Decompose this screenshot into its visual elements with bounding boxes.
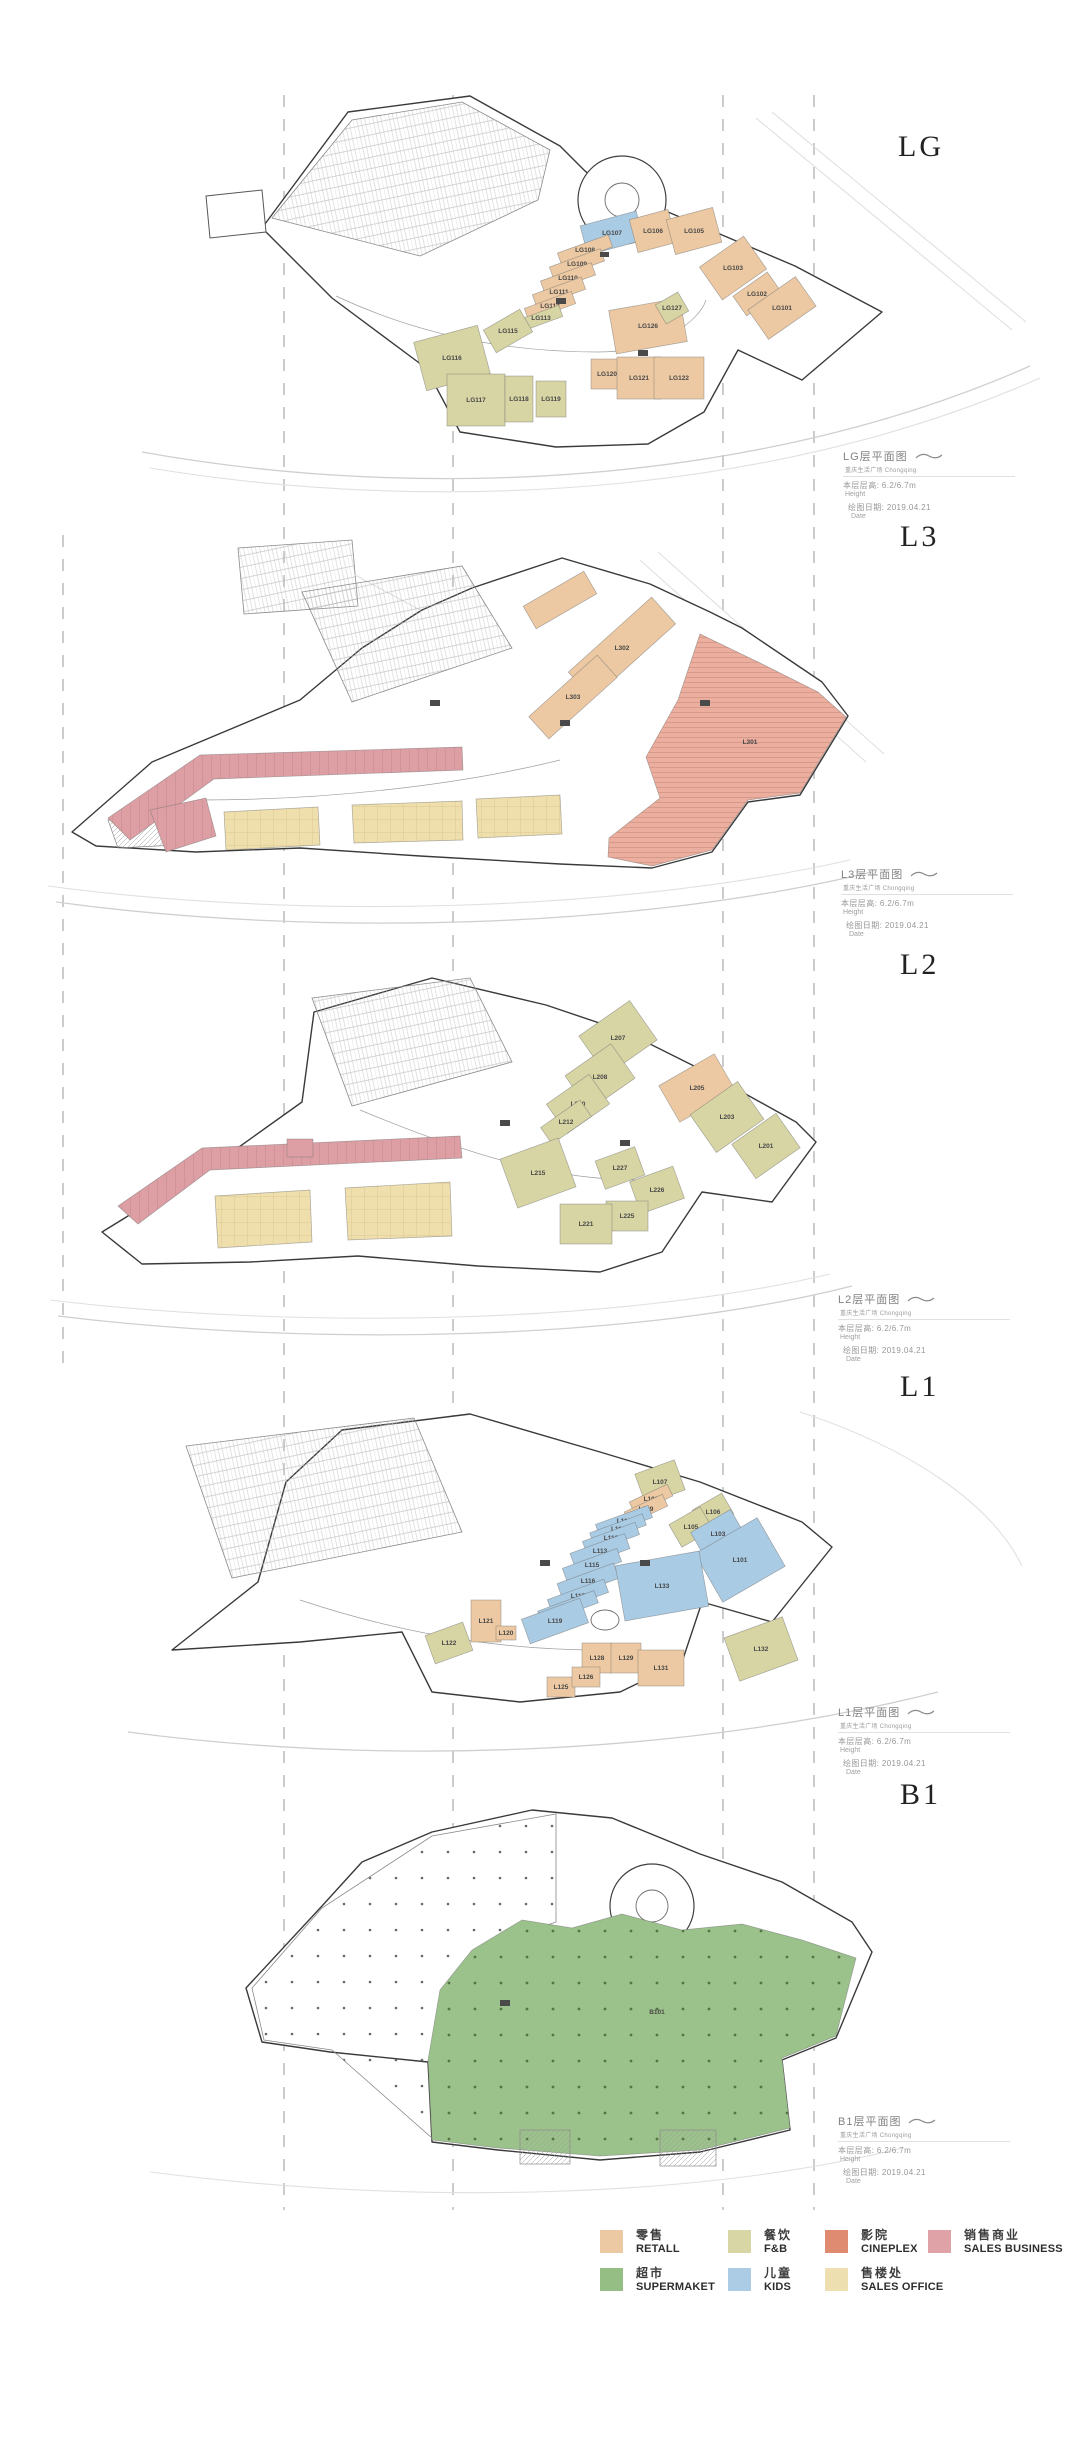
unit-L128 bbox=[582, 1643, 612, 1673]
stair-core bbox=[700, 700, 710, 706]
unit-L133 bbox=[615, 1551, 708, 1621]
unit-sales_business bbox=[108, 747, 463, 840]
annotation-rule bbox=[838, 1732, 1010, 1733]
building-footprint bbox=[262, 96, 882, 447]
unit-L303 bbox=[529, 655, 617, 739]
corridor-line bbox=[200, 760, 560, 800]
construction-gridline bbox=[62, 535, 64, 1365]
unit-LG118 bbox=[505, 376, 533, 422]
annotation-rule bbox=[841, 894, 1013, 895]
unit-label-L302: L302 bbox=[615, 645, 630, 652]
stair-core bbox=[430, 700, 440, 706]
legend-label-cn: 儿童 bbox=[764, 2267, 792, 2281]
stair-core bbox=[540, 1560, 550, 1566]
unit-L129 bbox=[611, 1643, 641, 1673]
floorplan-sheet: LG107LG106LG105LG103LG102LG101LG108LG109… bbox=[0, 0, 1080, 2463]
unit-L212 bbox=[541, 1100, 592, 1144]
annotation-height: 本层层高: 6.2/6.7m bbox=[838, 2145, 1028, 2156]
road-line bbox=[50, 1274, 830, 1318]
unit-L111 bbox=[590, 1514, 647, 1544]
annotation-rule bbox=[838, 1319, 1010, 1320]
unit-label-LG117: LG117 bbox=[466, 397, 486, 404]
floor-title-lg: LG bbox=[898, 130, 944, 164]
annotation-date-en: Date bbox=[849, 931, 1031, 939]
unit-label-LG112: LG112 bbox=[540, 303, 560, 310]
unit-LG106 bbox=[629, 209, 676, 252]
unit-LG109 bbox=[549, 249, 604, 280]
unit-LG122 bbox=[654, 357, 704, 399]
unit-LG119 bbox=[536, 381, 566, 417]
legend-item-sales-business: 销售商业 SALES BUSINESS bbox=[928, 2229, 1063, 2255]
stair-core bbox=[638, 350, 648, 356]
circular-ramp-inner bbox=[605, 183, 639, 217]
unit-LG127 bbox=[655, 292, 689, 324]
unit-label-LG106: LG106 bbox=[643, 228, 663, 235]
construction-gridline bbox=[722, 95, 724, 2210]
unit-L122 bbox=[425, 1622, 473, 1664]
unit-label-LG119: LG119 bbox=[541, 396, 561, 403]
legend-swatch-fnb bbox=[728, 2230, 751, 2253]
unit-retail bbox=[523, 571, 597, 629]
unit-L119 bbox=[521, 1598, 588, 1644]
annotation-height-en: Height bbox=[843, 909, 1031, 917]
plaza-oval bbox=[591, 1610, 619, 1630]
unit-sales_office bbox=[352, 801, 463, 843]
unit-L227 bbox=[595, 1147, 645, 1190]
unit-pattern-overlay bbox=[345, 1182, 452, 1240]
road-line bbox=[48, 860, 850, 907]
annotation-height-en: Height bbox=[845, 491, 1033, 499]
annotation-title: L1层平面图 bbox=[838, 1704, 900, 1720]
annotation-height: 本层层高: 6.2/6.7m bbox=[841, 898, 1031, 909]
annotation-title-row: B1层平面图 bbox=[838, 2113, 1028, 2129]
legend-swatch-retail bbox=[600, 2230, 623, 2253]
unit-label-L301: L301 bbox=[743, 739, 758, 746]
unit-sales_office bbox=[345, 1182, 452, 1240]
unit-L113 bbox=[570, 1534, 630, 1569]
unit-label-L210: L210 bbox=[571, 1101, 586, 1108]
plan-annotation-b1: B1层平面图 重庆生活广场 Chongqing 本层层高: 6.2/6.7m H… bbox=[838, 2113, 1028, 2185]
unit-label-L107: L107 bbox=[653, 1479, 668, 1486]
unit-pattern-overlay bbox=[352, 801, 463, 843]
unit-label-L215: L215 bbox=[531, 1170, 546, 1177]
legend-label-en: SUPERMAKET bbox=[636, 2281, 715, 2294]
unit-label-L208: L208 bbox=[593, 1074, 608, 1081]
legend-swatch-sales-office bbox=[825, 2268, 848, 2291]
unit-label-L115: L115 bbox=[585, 1562, 600, 1569]
annotation-date: 绘图日期: 2019.04.21 bbox=[843, 2167, 1028, 2178]
parking-area bbox=[252, 1814, 556, 2138]
unit-L126 bbox=[572, 1667, 600, 1687]
unit-label-L106: L106 bbox=[706, 1509, 721, 1516]
unit-label-L131: L131 bbox=[654, 1665, 669, 1672]
corridor-line bbox=[336, 296, 706, 352]
legend-swatch-supermarket bbox=[600, 2268, 623, 2291]
unit-L208 bbox=[565, 1044, 635, 1111]
construction-gridline bbox=[283, 95, 285, 2210]
legend-swatch-cineplex bbox=[825, 2230, 848, 2253]
annotation-date-en: Date bbox=[846, 1356, 1028, 1364]
road-line bbox=[640, 560, 866, 762]
unit-L203 bbox=[690, 1082, 764, 1153]
unit-sales_office bbox=[215, 1190, 312, 1248]
circular-ramp bbox=[578, 156, 666, 244]
unit-pattern-overlay bbox=[108, 747, 463, 840]
legend-item-sales-office: 售楼处 SALES OFFICE bbox=[825, 2267, 943, 2293]
unit-label-L133: L133 bbox=[655, 1583, 670, 1590]
annotation-title: LG层平面图 bbox=[843, 448, 908, 464]
unit-B101 bbox=[428, 1914, 856, 2156]
unit-label-LG101: LG101 bbox=[772, 305, 792, 312]
unit-label-L116: L116 bbox=[581, 1578, 596, 1585]
unit-LG105 bbox=[666, 207, 722, 254]
unit-layer: L301L302L303 bbox=[108, 571, 846, 866]
unit-L125 bbox=[547, 1677, 575, 1697]
unit-label-LG110: LG110 bbox=[558, 275, 578, 282]
road-line bbox=[658, 552, 884, 754]
unit-layer: L207L208L210L212L215L205L203L201L227L226… bbox=[118, 1001, 800, 1248]
floor-title-b1: B1 bbox=[900, 1778, 941, 1812]
unit-LG107 bbox=[580, 211, 644, 255]
unit-label-L128: L128 bbox=[590, 1655, 605, 1662]
legend-label-en: F&B bbox=[764, 2243, 792, 2256]
annotation-subtitle: 重庆生活广场 Chongqing bbox=[840, 2130, 1028, 2139]
unit-label-L105: L105 bbox=[684, 1524, 699, 1531]
ramp-hatch bbox=[108, 800, 176, 848]
legend-label-cn: 零售 bbox=[636, 2229, 680, 2243]
floor-plan-l2: L207L208L210L212L215L205L203L201L227L226… bbox=[0, 950, 1080, 1350]
road-line bbox=[756, 118, 1012, 330]
annotation-title-row: L1层平面图 bbox=[838, 1704, 1028, 1720]
legend-label-cn: 超市 bbox=[636, 2267, 715, 2281]
unit-label-LG107: LG107 bbox=[602, 230, 622, 237]
unit-label-L207: L207 bbox=[611, 1035, 626, 1042]
corridor-line bbox=[360, 1110, 640, 1180]
unit-L105 bbox=[669, 1507, 713, 1548]
legend-label-en: SALES OFFICE bbox=[861, 2281, 943, 2294]
unit-L118 bbox=[538, 1591, 599, 1624]
legend-swatch-kids bbox=[728, 2268, 751, 2291]
annotation-title-row: LG层平面图 bbox=[843, 448, 1033, 464]
unit-L108 bbox=[629, 1484, 673, 1514]
unit-label-L132: L132 bbox=[754, 1646, 769, 1653]
unit-pattern-overlay bbox=[150, 798, 216, 852]
plan-annotation-l3: L3层平面图 重庆生活广场 Chongqing 本层层高: 6.2/6.7m H… bbox=[841, 866, 1031, 938]
annotation-height-en: Height bbox=[840, 1747, 1028, 1755]
annotation-height-en: Height bbox=[840, 1334, 1028, 1342]
unit-label-L113: L113 bbox=[593, 1548, 608, 1555]
legend-label-cn: 售楼处 bbox=[861, 2267, 943, 2281]
unit-label-L119: L119 bbox=[548, 1618, 563, 1625]
unit-pattern-overlay bbox=[428, 1914, 856, 2156]
loading-dock bbox=[520, 2130, 570, 2164]
unit-L131 bbox=[638, 1650, 684, 1686]
unit-label-L101: L101 bbox=[733, 1557, 748, 1564]
annotation-date-en: Date bbox=[851, 513, 1033, 521]
unit-sales_business bbox=[150, 798, 216, 852]
unit-sales_office bbox=[224, 807, 320, 850]
unit-label-LG108: LG108 bbox=[575, 247, 595, 254]
unit-label-L227: L227 bbox=[613, 1165, 628, 1172]
unit-label-B101: B101 bbox=[649, 2009, 665, 2016]
unit-label-L118: L118 bbox=[561, 1604, 576, 1611]
annotation-date: 绘图日期: 2019.04.21 bbox=[846, 920, 1031, 931]
annotation-subtitle: 重庆生活广场 Chongqing bbox=[840, 1721, 1028, 1730]
unit-label-L120: L120 bbox=[499, 1630, 514, 1637]
unit-label-L225: L225 bbox=[620, 1213, 635, 1220]
unit-label-LG115: LG115 bbox=[498, 328, 518, 335]
unit-L225 bbox=[606, 1201, 648, 1231]
unit-L210 bbox=[546, 1074, 609, 1133]
unit-L107 bbox=[635, 1460, 685, 1504]
unit-label-L125: L125 bbox=[554, 1684, 569, 1691]
plan-annotation-lg: LG层平面图 重庆生活广场 Chongqing 本层层高: 6.2/6.7m H… bbox=[843, 448, 1033, 520]
unit-layer: B101 bbox=[428, 1914, 856, 2156]
legend-label-cn: 餐饮 bbox=[764, 2229, 792, 2243]
unit-label-L121: L121 bbox=[479, 1618, 494, 1625]
detached-block bbox=[238, 540, 358, 614]
unit-label-LG109: LG109 bbox=[567, 261, 587, 268]
unit-LG120 bbox=[591, 359, 623, 389]
loading-dock bbox=[660, 2130, 716, 2166]
unit-L201 bbox=[732, 1113, 800, 1178]
unit-label-L122: L122 bbox=[442, 1640, 457, 1647]
unit-label-LG121: LG121 bbox=[629, 375, 649, 382]
unit-LG115 bbox=[483, 309, 532, 353]
building-footprint bbox=[102, 978, 816, 1272]
annotation-height: 本层层高: 6.2/6.7m bbox=[838, 1736, 1028, 1747]
unit-L101 bbox=[695, 1518, 785, 1602]
unit-label-L126: L126 bbox=[579, 1674, 594, 1681]
legend-label-en: SALES BUSINESS bbox=[964, 2243, 1063, 2256]
legend-item-supermarket: 超市 SUPERMAKET bbox=[600, 2267, 715, 2293]
unit-label-LG126: LG126 bbox=[638, 323, 658, 330]
unit-layer: LG107LG106LG105LG103LG102LG101LG108LG109… bbox=[414, 207, 816, 426]
unit-label-L108: L108 bbox=[644, 1496, 659, 1503]
unit-label-L226: L226 bbox=[650, 1187, 665, 1194]
unit-LG110 bbox=[540, 263, 595, 294]
unit-label-L117: L117 bbox=[571, 1593, 586, 1600]
parking-garage bbox=[186, 1418, 462, 1578]
unit-L121 bbox=[471, 1600, 501, 1642]
annotation-date: 绘图日期: 2019.04.21 bbox=[843, 1345, 1028, 1356]
stair-core bbox=[556, 298, 566, 304]
annotation-height-en: Height bbox=[840, 2156, 1028, 2164]
logo-squiggle-icon bbox=[906, 1707, 936, 1717]
annotation-title-row: L3层平面图 bbox=[841, 866, 1031, 882]
annotation-title-row: L2层平面图 bbox=[838, 1291, 1028, 1307]
annotation-title: L2层平面图 bbox=[838, 1291, 900, 1307]
unit-L221 bbox=[560, 1204, 612, 1244]
legend-label-cn: 销售商业 bbox=[964, 2229, 1063, 2243]
building-footprint bbox=[172, 1414, 832, 1702]
unit-L117 bbox=[547, 1579, 608, 1613]
plan-annotation-l2: L2层平面图 重庆生活广场 Chongqing 本层层高: 6.2/6.7m H… bbox=[838, 1291, 1028, 1363]
annotation-rule bbox=[838, 2141, 1010, 2142]
annotation-height: 本层层高: 6.2/6.7m bbox=[838, 1323, 1028, 1334]
annotation-subtitle: 重庆生活广场 Chongqing bbox=[845, 465, 1033, 474]
entry-block bbox=[206, 190, 266, 238]
unit-label-L110: L110 bbox=[617, 1518, 632, 1525]
logo-squiggle-icon bbox=[909, 869, 939, 879]
unit-LG117 bbox=[447, 374, 505, 426]
annotation-date-en: Date bbox=[846, 1769, 1028, 1777]
unit-sales_business bbox=[118, 1136, 462, 1224]
logo-squiggle-icon bbox=[914, 451, 944, 461]
road-line bbox=[56, 872, 872, 923]
legend-label-cn: 影院 bbox=[861, 2229, 918, 2243]
legend-item-kids: 儿童 KIDS bbox=[728, 2267, 792, 2293]
logo-squiggle-icon bbox=[907, 2116, 937, 2126]
annotation-date: 绘图日期: 2019.04.21 bbox=[843, 1758, 1028, 1769]
legend-item-fnb: 餐饮 F&B bbox=[728, 2229, 792, 2255]
unit-label-L303: L303 bbox=[566, 694, 581, 701]
annotation-height: 本层层高: 6.2/6.7m bbox=[843, 480, 1033, 491]
annotation-title: L3层平面图 bbox=[841, 866, 903, 882]
unit-sales_office bbox=[476, 795, 562, 838]
corridor-line bbox=[300, 1600, 600, 1650]
unit-label-LG122: LG122 bbox=[669, 375, 689, 382]
annotation-rule bbox=[843, 476, 1015, 477]
building-footprint bbox=[246, 1810, 872, 2160]
stair-core bbox=[500, 1120, 510, 1126]
stair-core bbox=[500, 2000, 510, 2006]
bridge-line bbox=[355, 575, 420, 610]
unit-LG113 bbox=[519, 305, 563, 331]
unit-L110 bbox=[595, 1505, 652, 1536]
stair-core bbox=[640, 1560, 650, 1566]
unit-label-L112: L112 bbox=[604, 1535, 619, 1542]
unit-L215 bbox=[500, 1138, 576, 1208]
stair-core bbox=[620, 1140, 630, 1146]
unit-LG112 bbox=[524, 291, 575, 320]
annotation-subtitle: 重庆生活广场 Chongqing bbox=[840, 1308, 1028, 1317]
unit-label-LG102: LG102 bbox=[747, 291, 767, 298]
unit-label-L221: L221 bbox=[579, 1221, 594, 1228]
unit-label-LG103: LG103 bbox=[723, 265, 743, 272]
parking-garage bbox=[312, 978, 512, 1106]
unit-label-LG111: LG111 bbox=[549, 289, 569, 296]
unit-LG101 bbox=[748, 277, 816, 340]
parking-garage bbox=[302, 566, 512, 702]
unit-L120 bbox=[496, 1626, 516, 1640]
stair-core bbox=[560, 720, 570, 726]
parking-garage bbox=[272, 102, 550, 256]
annotation-date: 绘图日期: 2019.04.21 bbox=[848, 502, 1033, 513]
unit-LG126 bbox=[609, 298, 688, 354]
unit-label-L212: L212 bbox=[559, 1119, 574, 1126]
unit-L301 bbox=[608, 634, 846, 866]
circular-ramp-inner bbox=[636, 1890, 668, 1922]
unit-L302 bbox=[568, 597, 675, 699]
legend-label-en: RETALL bbox=[636, 2243, 680, 2256]
road-line bbox=[58, 1286, 852, 1335]
unit-L103 bbox=[691, 1510, 746, 1559]
legend-label-en: KIDS bbox=[764, 2281, 792, 2294]
unit-pattern-overlay bbox=[476, 795, 562, 838]
construction-gridline bbox=[452, 95, 454, 2210]
road-line bbox=[128, 1692, 938, 1751]
unit-label-L205: L205 bbox=[690, 1085, 705, 1092]
unit-pattern-overlay bbox=[224, 807, 320, 850]
unit-LG102 bbox=[733, 272, 781, 316]
road-line bbox=[800, 1412, 1022, 1566]
unit-layer: L107L108L109L106L105L103L101L110L111L112… bbox=[425, 1460, 798, 1697]
annotation-subtitle: 重庆生活广场 Chongqing bbox=[843, 883, 1031, 892]
annotation-title: B1层平面图 bbox=[838, 2113, 901, 2129]
unit-pattern-overlay bbox=[215, 1190, 312, 1248]
unit-LG108 bbox=[557, 235, 612, 266]
legend-label-en: CINEPLEX bbox=[861, 2243, 918, 2256]
unit-L112 bbox=[582, 1522, 639, 1553]
unit-L115 bbox=[562, 1549, 621, 1582]
building-footprint bbox=[72, 558, 848, 868]
floor-title-l2: L2 bbox=[900, 948, 939, 982]
unit-label-LG120: LG120 bbox=[597, 371, 617, 378]
unit-pattern-overlay bbox=[118, 1136, 462, 1224]
unit-label-L109: L109 bbox=[639, 1506, 654, 1513]
unit-label-L111: L111 bbox=[611, 1526, 625, 1533]
unit-label-L129: L129 bbox=[619, 1655, 634, 1662]
unit-L226 bbox=[630, 1166, 685, 1214]
logo-squiggle-icon bbox=[906, 1294, 936, 1304]
legend-swatch-sales-business bbox=[928, 2230, 951, 2253]
unit-sales_business bbox=[287, 1139, 313, 1157]
annotation-date-en: Date bbox=[846, 2178, 1028, 2186]
road-line bbox=[150, 2148, 902, 2193]
legend-item-retail: 零售 RETALL bbox=[600, 2229, 680, 2255]
legend-item-cineplex: 影院 CINEPLEX bbox=[825, 2229, 918, 2255]
unit-label-LG118: LG118 bbox=[509, 396, 529, 403]
unit-L106 bbox=[692, 1493, 733, 1531]
stair-core bbox=[600, 252, 609, 257]
unit-label-LG105: LG105 bbox=[684, 228, 704, 235]
unit-L109 bbox=[624, 1494, 668, 1524]
unit-LG121 bbox=[617, 357, 661, 399]
floor-title-l3: L3 bbox=[900, 520, 939, 554]
construction-gridline bbox=[813, 95, 815, 2210]
unit-LG111 bbox=[532, 277, 585, 307]
unit-label-L201: L201 bbox=[759, 1143, 774, 1150]
unit-pattern-overlay bbox=[608, 634, 846, 866]
circular-ramp bbox=[610, 1864, 694, 1948]
plan-annotation-l1: L1层平面图 重庆生活广场 Chongqing 本层层高: 6.2/6.7m H… bbox=[838, 1704, 1028, 1776]
unit-L132 bbox=[724, 1617, 798, 1681]
unit-label-LG127: LG127 bbox=[662, 305, 682, 312]
unit-label-LG113: LG113 bbox=[531, 315, 551, 322]
unit-L207 bbox=[579, 1001, 657, 1076]
unit-LG103 bbox=[699, 236, 766, 300]
unit-L116 bbox=[557, 1563, 619, 1599]
floor-title-l1: L1 bbox=[900, 1370, 939, 1404]
